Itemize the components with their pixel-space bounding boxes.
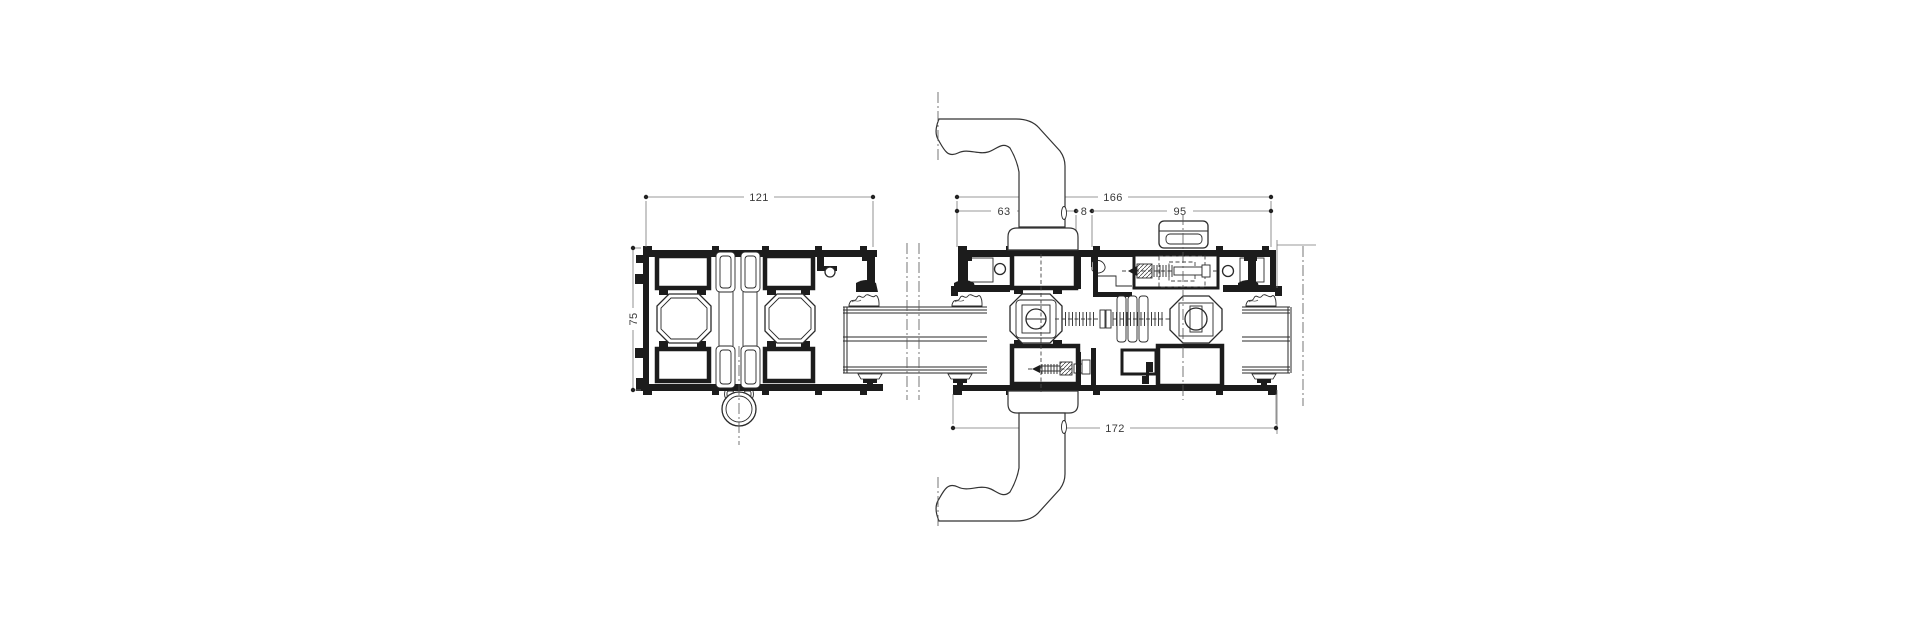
handle-sash-chamber (1012, 254, 1076, 288)
dimension-166-label: 166 (1103, 192, 1123, 204)
dimension-75-label: 75 (628, 312, 640, 325)
handle-rosette (1008, 391, 1078, 413)
technical-drawing: 121 75 166 63 (0, 0, 1920, 640)
dimension-121-label: 121 (749, 192, 769, 204)
dimension-95-label: 95 (1173, 206, 1186, 218)
dimension-8-label: 8 (1081, 206, 1088, 218)
bead-notch (825, 267, 835, 277)
background (0, 0, 1920, 640)
dimension-63-label: 63 (997, 206, 1010, 218)
drawing-canvas: 121 75 166 63 (0, 0, 1920, 640)
lock-keeper-top (1159, 221, 1208, 248)
handle-rosette (1008, 228, 1078, 250)
dimension-172-label: 172 (1105, 423, 1125, 435)
